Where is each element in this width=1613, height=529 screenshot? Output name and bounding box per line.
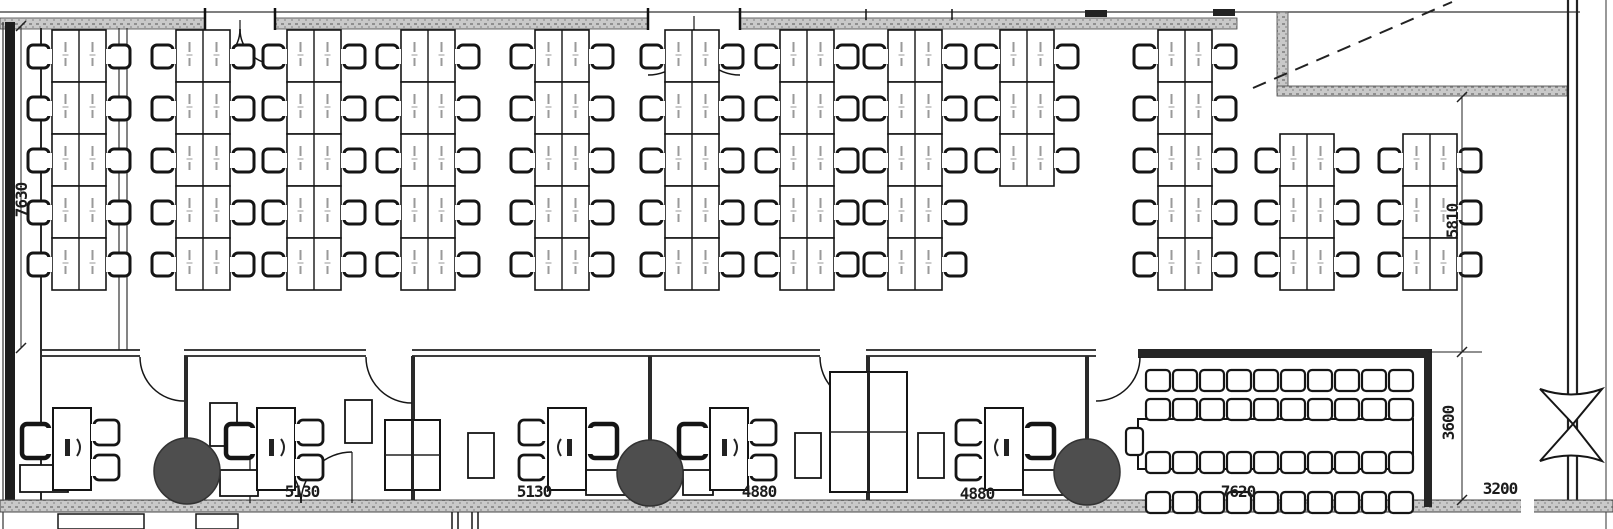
conference-chair bbox=[1335, 492, 1359, 513]
chair-opening bbox=[1152, 205, 1158, 220]
chair-opening bbox=[281, 257, 287, 272]
chair-opening bbox=[774, 49, 780, 64]
chair-opening bbox=[1397, 153, 1403, 168]
task-chair bbox=[344, 253, 365, 276]
conference-chair bbox=[1173, 399, 1197, 420]
chair-opening bbox=[281, 101, 287, 116]
chair-opening bbox=[978, 459, 984, 476]
lobby-outline bbox=[196, 514, 238, 529]
conference-chair bbox=[1281, 452, 1305, 473]
chair-opening bbox=[541, 424, 547, 441]
chair-opening bbox=[1334, 153, 1340, 168]
task-chair bbox=[1134, 253, 1155, 276]
chair-opening bbox=[719, 49, 725, 64]
office-door-arc bbox=[366, 357, 412, 403]
monitor-icon bbox=[722, 439, 727, 456]
task-chair bbox=[756, 149, 777, 172]
task-chair bbox=[641, 253, 662, 276]
chair-opening bbox=[341, 205, 347, 220]
task-chair bbox=[756, 253, 777, 276]
wall-tick-bar bbox=[1085, 10, 1107, 17]
task-chair bbox=[1057, 45, 1078, 68]
chair-opening bbox=[106, 153, 112, 168]
task-chair bbox=[377, 97, 398, 120]
lobby-outline bbox=[58, 514, 144, 529]
conference-chair bbox=[1335, 399, 1359, 420]
task-chair bbox=[109, 97, 130, 120]
notch-wall-horizontal bbox=[1277, 86, 1567, 96]
chair-opening bbox=[1212, 101, 1218, 116]
task-chair bbox=[233, 201, 254, 224]
task-chair bbox=[28, 253, 49, 276]
chair-opening bbox=[46, 205, 52, 220]
conference-chair bbox=[1281, 370, 1305, 391]
chair-opening bbox=[455, 153, 461, 168]
conference-chair bbox=[1227, 452, 1251, 473]
top-wall-segment bbox=[740, 18, 1237, 29]
conference-side-wall bbox=[1424, 349, 1432, 507]
task-chair bbox=[233, 97, 254, 120]
task-chair bbox=[1337, 253, 1358, 276]
task-chair bbox=[1460, 253, 1481, 276]
chair-opening bbox=[1152, 101, 1158, 116]
task-chair bbox=[1337, 201, 1358, 224]
chair-opening bbox=[589, 101, 595, 116]
bottom-wall-gap bbox=[1521, 498, 1534, 514]
chair-opening bbox=[341, 49, 347, 64]
chair-opening bbox=[281, 153, 287, 168]
conference-chair bbox=[1200, 452, 1224, 473]
office-door-arc bbox=[140, 357, 184, 401]
top-wall-segment bbox=[275, 18, 648, 29]
task-chair bbox=[837, 253, 858, 276]
chair-opening bbox=[942, 205, 948, 220]
monitor-icon bbox=[567, 439, 572, 456]
chair-opening bbox=[295, 424, 301, 441]
task-chair bbox=[592, 253, 613, 276]
conference-chair bbox=[1173, 370, 1197, 391]
chair-opening bbox=[170, 205, 176, 220]
chair-opening bbox=[230, 101, 236, 116]
chair-opening bbox=[774, 101, 780, 116]
conference-chair bbox=[1146, 452, 1170, 473]
chair-opening bbox=[774, 257, 780, 272]
task-chair bbox=[263, 149, 284, 172]
chair-opening bbox=[529, 205, 535, 220]
chair-opening bbox=[1152, 153, 1158, 168]
task-chair bbox=[511, 45, 532, 68]
task-chair bbox=[458, 201, 479, 224]
chair-opening bbox=[882, 49, 888, 64]
chair-opening bbox=[978, 424, 984, 441]
conference-chair bbox=[1308, 452, 1332, 473]
chair-opening bbox=[994, 153, 1000, 168]
chair-opening bbox=[719, 101, 725, 116]
chair-opening bbox=[659, 153, 665, 168]
chair-opening bbox=[455, 257, 461, 272]
guest-chair bbox=[94, 420, 119, 445]
task-chair bbox=[641, 201, 662, 224]
task-chair bbox=[511, 201, 532, 224]
chair-opening bbox=[659, 49, 665, 64]
chair-opening bbox=[1054, 101, 1060, 116]
task-chair bbox=[1134, 45, 1155, 68]
chair-opening bbox=[994, 101, 1000, 116]
task-chair bbox=[28, 45, 49, 68]
task-chair bbox=[458, 45, 479, 68]
executive-chair bbox=[226, 424, 253, 458]
task-chair bbox=[344, 149, 365, 172]
task-chair bbox=[458, 97, 479, 120]
chair-opening bbox=[882, 205, 888, 220]
task-chair bbox=[377, 201, 398, 224]
monitor-icon bbox=[65, 439, 70, 456]
dim-label-office-4: 4880 bbox=[960, 484, 995, 503]
conference-chair bbox=[1389, 370, 1413, 391]
chair-opening bbox=[882, 101, 888, 116]
chair-opening bbox=[1212, 205, 1218, 220]
task-chair bbox=[344, 201, 365, 224]
chair-opening bbox=[250, 428, 256, 454]
top-wall-segment bbox=[0, 18, 205, 29]
task-chair bbox=[1215, 45, 1236, 68]
desk-return bbox=[683, 470, 713, 495]
wall-tick-bar bbox=[1213, 9, 1235, 16]
task-chair bbox=[152, 201, 173, 224]
chair-opening bbox=[774, 153, 780, 168]
task-chair bbox=[976, 149, 997, 172]
chair-opening bbox=[834, 153, 840, 168]
task-chair bbox=[837, 201, 858, 224]
chair-opening bbox=[748, 459, 754, 476]
task-chair bbox=[722, 253, 743, 276]
guest-chair bbox=[94, 455, 119, 480]
chair-opening bbox=[1212, 153, 1218, 168]
chair-opening bbox=[942, 101, 948, 116]
floor-plan: 7630 5810 3600 5130 5130 4880 4880 7620 … bbox=[0, 0, 1613, 529]
conference-chair bbox=[1335, 452, 1359, 473]
chair-opening bbox=[46, 49, 52, 64]
chair-opening bbox=[46, 257, 52, 272]
conference-room-furniture bbox=[1126, 370, 1413, 513]
chair-opening bbox=[1334, 205, 1340, 220]
chair-opening bbox=[106, 101, 112, 116]
task-chair bbox=[1379, 149, 1400, 172]
section-marker-lower-triangle bbox=[1540, 424, 1602, 461]
notch-wall-vertical bbox=[1277, 12, 1288, 92]
chair-opening bbox=[455, 49, 461, 64]
task-chair bbox=[458, 253, 479, 276]
task-chair bbox=[1460, 149, 1481, 172]
guest-chair bbox=[751, 455, 776, 480]
task-chair bbox=[722, 97, 743, 120]
office-desk bbox=[710, 408, 748, 490]
chair-opening bbox=[1274, 205, 1280, 220]
chair-opening bbox=[395, 153, 401, 168]
chair-opening bbox=[659, 101, 665, 116]
chair-opening bbox=[834, 205, 840, 220]
dim-label-left-depth: 7630 bbox=[12, 182, 31, 217]
task-chair bbox=[109, 201, 130, 224]
chair-opening bbox=[1274, 153, 1280, 168]
executive-chair bbox=[679, 424, 706, 458]
conference-chair bbox=[1173, 452, 1197, 473]
chair-opening bbox=[230, 205, 236, 220]
chair-opening bbox=[1152, 49, 1158, 64]
task-chair bbox=[152, 45, 173, 68]
chair-opening bbox=[1212, 49, 1218, 64]
task-chair bbox=[641, 149, 662, 172]
task-chair bbox=[1460, 201, 1481, 224]
conference-end-chair bbox=[1126, 428, 1143, 455]
monitor-icon bbox=[269, 439, 274, 456]
dim-label-right-depth: 5810 bbox=[1443, 203, 1462, 238]
conference-chair bbox=[1335, 370, 1359, 391]
task-chair bbox=[109, 45, 130, 68]
conference-chair bbox=[1173, 492, 1197, 513]
floor-plan-drawing: 7630 5810 3600 5130 5130 4880 4880 7620 … bbox=[0, 0, 1613, 529]
chair-opening bbox=[834, 49, 840, 64]
task-chair bbox=[641, 45, 662, 68]
conference-chair bbox=[1308, 399, 1332, 420]
task-chair bbox=[1134, 149, 1155, 172]
guest-chair bbox=[956, 420, 981, 445]
chair-opening bbox=[529, 257, 535, 272]
task-chair bbox=[233, 45, 254, 68]
chair-opening bbox=[529, 101, 535, 116]
task-chair bbox=[1057, 97, 1078, 120]
chair-opening bbox=[1024, 428, 1030, 454]
conference-chair bbox=[1146, 399, 1170, 420]
task-chair bbox=[722, 201, 743, 224]
chair-opening bbox=[341, 153, 347, 168]
desk-return bbox=[220, 470, 258, 496]
dim-label-office-3: 4880 bbox=[742, 482, 777, 501]
chair-opening bbox=[1054, 153, 1060, 168]
chair-opening bbox=[281, 205, 287, 220]
chair-opening bbox=[774, 205, 780, 220]
task-chair bbox=[864, 149, 885, 172]
office-front-wall bbox=[42, 350, 1096, 356]
task-chair bbox=[263, 45, 284, 68]
task-chair bbox=[1256, 149, 1277, 172]
cabinet bbox=[468, 433, 494, 478]
conference-chair bbox=[1362, 370, 1386, 391]
chair-opening bbox=[882, 257, 888, 272]
dim-label-right-strip-width: 3200 bbox=[1483, 479, 1518, 498]
chair-opening bbox=[719, 257, 725, 272]
chair-opening bbox=[1212, 257, 1218, 272]
task-chair bbox=[756, 45, 777, 68]
monitor-icon bbox=[1004, 439, 1009, 456]
task-chair bbox=[1215, 149, 1236, 172]
task-chair bbox=[511, 97, 532, 120]
chair-opening bbox=[281, 49, 287, 64]
chair-opening bbox=[230, 257, 236, 272]
task-chair bbox=[837, 45, 858, 68]
dim-label-conference-width: 7620 bbox=[1221, 482, 1256, 501]
chair-opening bbox=[703, 428, 709, 454]
chair-opening bbox=[455, 101, 461, 116]
guest-chair bbox=[298, 420, 323, 445]
task-chair bbox=[233, 253, 254, 276]
conference-chair bbox=[1254, 452, 1278, 473]
task-chair bbox=[458, 149, 479, 172]
task-chair bbox=[641, 97, 662, 120]
task-chair bbox=[592, 97, 613, 120]
task-chair bbox=[511, 253, 532, 276]
executive-chair bbox=[22, 424, 49, 458]
task-chair bbox=[1215, 97, 1236, 120]
task-chair bbox=[1215, 201, 1236, 224]
chair-opening bbox=[91, 424, 97, 441]
task-chair bbox=[756, 201, 777, 224]
chair-opening bbox=[529, 153, 535, 168]
chair-opening bbox=[341, 101, 347, 116]
task-chair bbox=[976, 45, 997, 68]
chair-opening bbox=[395, 49, 401, 64]
guest-chair bbox=[519, 420, 544, 445]
chair-opening bbox=[719, 153, 725, 168]
guest-chair bbox=[519, 455, 544, 480]
chair-opening bbox=[395, 257, 401, 272]
task-chair bbox=[945, 253, 966, 276]
conference-chair bbox=[1200, 399, 1224, 420]
chair-opening bbox=[230, 153, 236, 168]
round-table bbox=[617, 440, 683, 506]
chair-opening bbox=[106, 257, 112, 272]
task-chair bbox=[1134, 97, 1155, 120]
chair-opening bbox=[46, 153, 52, 168]
task-chair bbox=[1215, 253, 1236, 276]
chair-opening bbox=[834, 101, 840, 116]
task-chair bbox=[592, 149, 613, 172]
chair-opening bbox=[942, 153, 948, 168]
task-chair bbox=[109, 253, 130, 276]
task-chair bbox=[945, 97, 966, 120]
guest-chair bbox=[956, 455, 981, 480]
chair-opening bbox=[994, 49, 1000, 64]
open-area-desk-islands bbox=[28, 30, 1481, 290]
task-chair bbox=[945, 45, 966, 68]
chair-opening bbox=[170, 257, 176, 272]
left-wall bbox=[5, 22, 15, 509]
task-chair bbox=[592, 201, 613, 224]
task-chair bbox=[756, 97, 777, 120]
task-chair bbox=[344, 45, 365, 68]
task-chair bbox=[864, 45, 885, 68]
task-chair bbox=[344, 97, 365, 120]
conference-chair bbox=[1254, 399, 1278, 420]
conference-chair bbox=[1227, 399, 1251, 420]
task-chair bbox=[864, 97, 885, 120]
chair-opening bbox=[659, 257, 665, 272]
chair-opening bbox=[882, 153, 888, 168]
task-chair bbox=[263, 201, 284, 224]
chair-opening bbox=[541, 459, 547, 476]
task-chair bbox=[722, 45, 743, 68]
chair-opening bbox=[942, 257, 948, 272]
chair-opening bbox=[1334, 257, 1340, 272]
chair-opening bbox=[46, 101, 52, 116]
chair-opening bbox=[589, 257, 595, 272]
conference-chair bbox=[1146, 370, 1170, 391]
conference-door-arc bbox=[1096, 357, 1140, 401]
chair-opening bbox=[529, 49, 535, 64]
chair-opening bbox=[170, 49, 176, 64]
task-chair bbox=[1256, 253, 1277, 276]
chair-opening bbox=[295, 459, 301, 476]
task-chair bbox=[263, 253, 284, 276]
task-chair bbox=[864, 201, 885, 224]
cabinet bbox=[345, 400, 372, 443]
task-chair bbox=[109, 149, 130, 172]
task-chair bbox=[1379, 201, 1400, 224]
conference-chair bbox=[1362, 452, 1386, 473]
chair-opening bbox=[395, 101, 401, 116]
conference-chair bbox=[1308, 492, 1332, 513]
task-chair bbox=[1134, 201, 1155, 224]
task-chair bbox=[837, 97, 858, 120]
chair-opening bbox=[589, 49, 595, 64]
section-marker bbox=[1540, 389, 1602, 461]
executive-chair bbox=[590, 424, 617, 458]
conference-chair bbox=[1362, 399, 1386, 420]
conference-chair bbox=[1254, 492, 1278, 513]
chair-opening bbox=[659, 205, 665, 220]
conference-chair bbox=[1200, 370, 1224, 391]
task-chair bbox=[1256, 201, 1277, 224]
task-chair bbox=[722, 149, 743, 172]
task-chair bbox=[377, 253, 398, 276]
guest-chair bbox=[751, 420, 776, 445]
chair-opening bbox=[719, 205, 725, 220]
chair-opening bbox=[589, 205, 595, 220]
task-chair bbox=[28, 201, 49, 224]
chair-opening bbox=[834, 257, 840, 272]
chair-opening bbox=[341, 257, 347, 272]
task-chair bbox=[592, 45, 613, 68]
conference-chair bbox=[1254, 370, 1278, 391]
chair-opening bbox=[230, 49, 236, 64]
task-chair bbox=[152, 97, 173, 120]
conference-chair bbox=[1281, 492, 1305, 513]
task-chair bbox=[152, 149, 173, 172]
chair-opening bbox=[106, 205, 112, 220]
conference-chair bbox=[1389, 399, 1413, 420]
conference-chair bbox=[1362, 492, 1386, 513]
cabinet bbox=[918, 433, 944, 478]
chair-opening bbox=[455, 205, 461, 220]
chair-opening bbox=[395, 205, 401, 220]
office-desk bbox=[53, 408, 91, 490]
dim-label-right-room-depth: 3600 bbox=[1439, 405, 1458, 440]
section-marker-upper-triangle bbox=[1540, 389, 1602, 424]
chair-opening bbox=[1397, 205, 1403, 220]
dim-label-office-2: 5130 bbox=[517, 482, 552, 501]
chair-opening bbox=[106, 49, 112, 64]
dim-label-office-1: 5130 bbox=[285, 482, 320, 501]
task-chair bbox=[945, 201, 966, 224]
office-desk bbox=[257, 408, 295, 490]
task-chair bbox=[263, 97, 284, 120]
chair-opening bbox=[589, 153, 595, 168]
task-chair bbox=[28, 97, 49, 120]
chair-opening bbox=[170, 101, 176, 116]
conference-chair bbox=[1227, 370, 1251, 391]
task-chair bbox=[233, 149, 254, 172]
task-chair bbox=[152, 253, 173, 276]
